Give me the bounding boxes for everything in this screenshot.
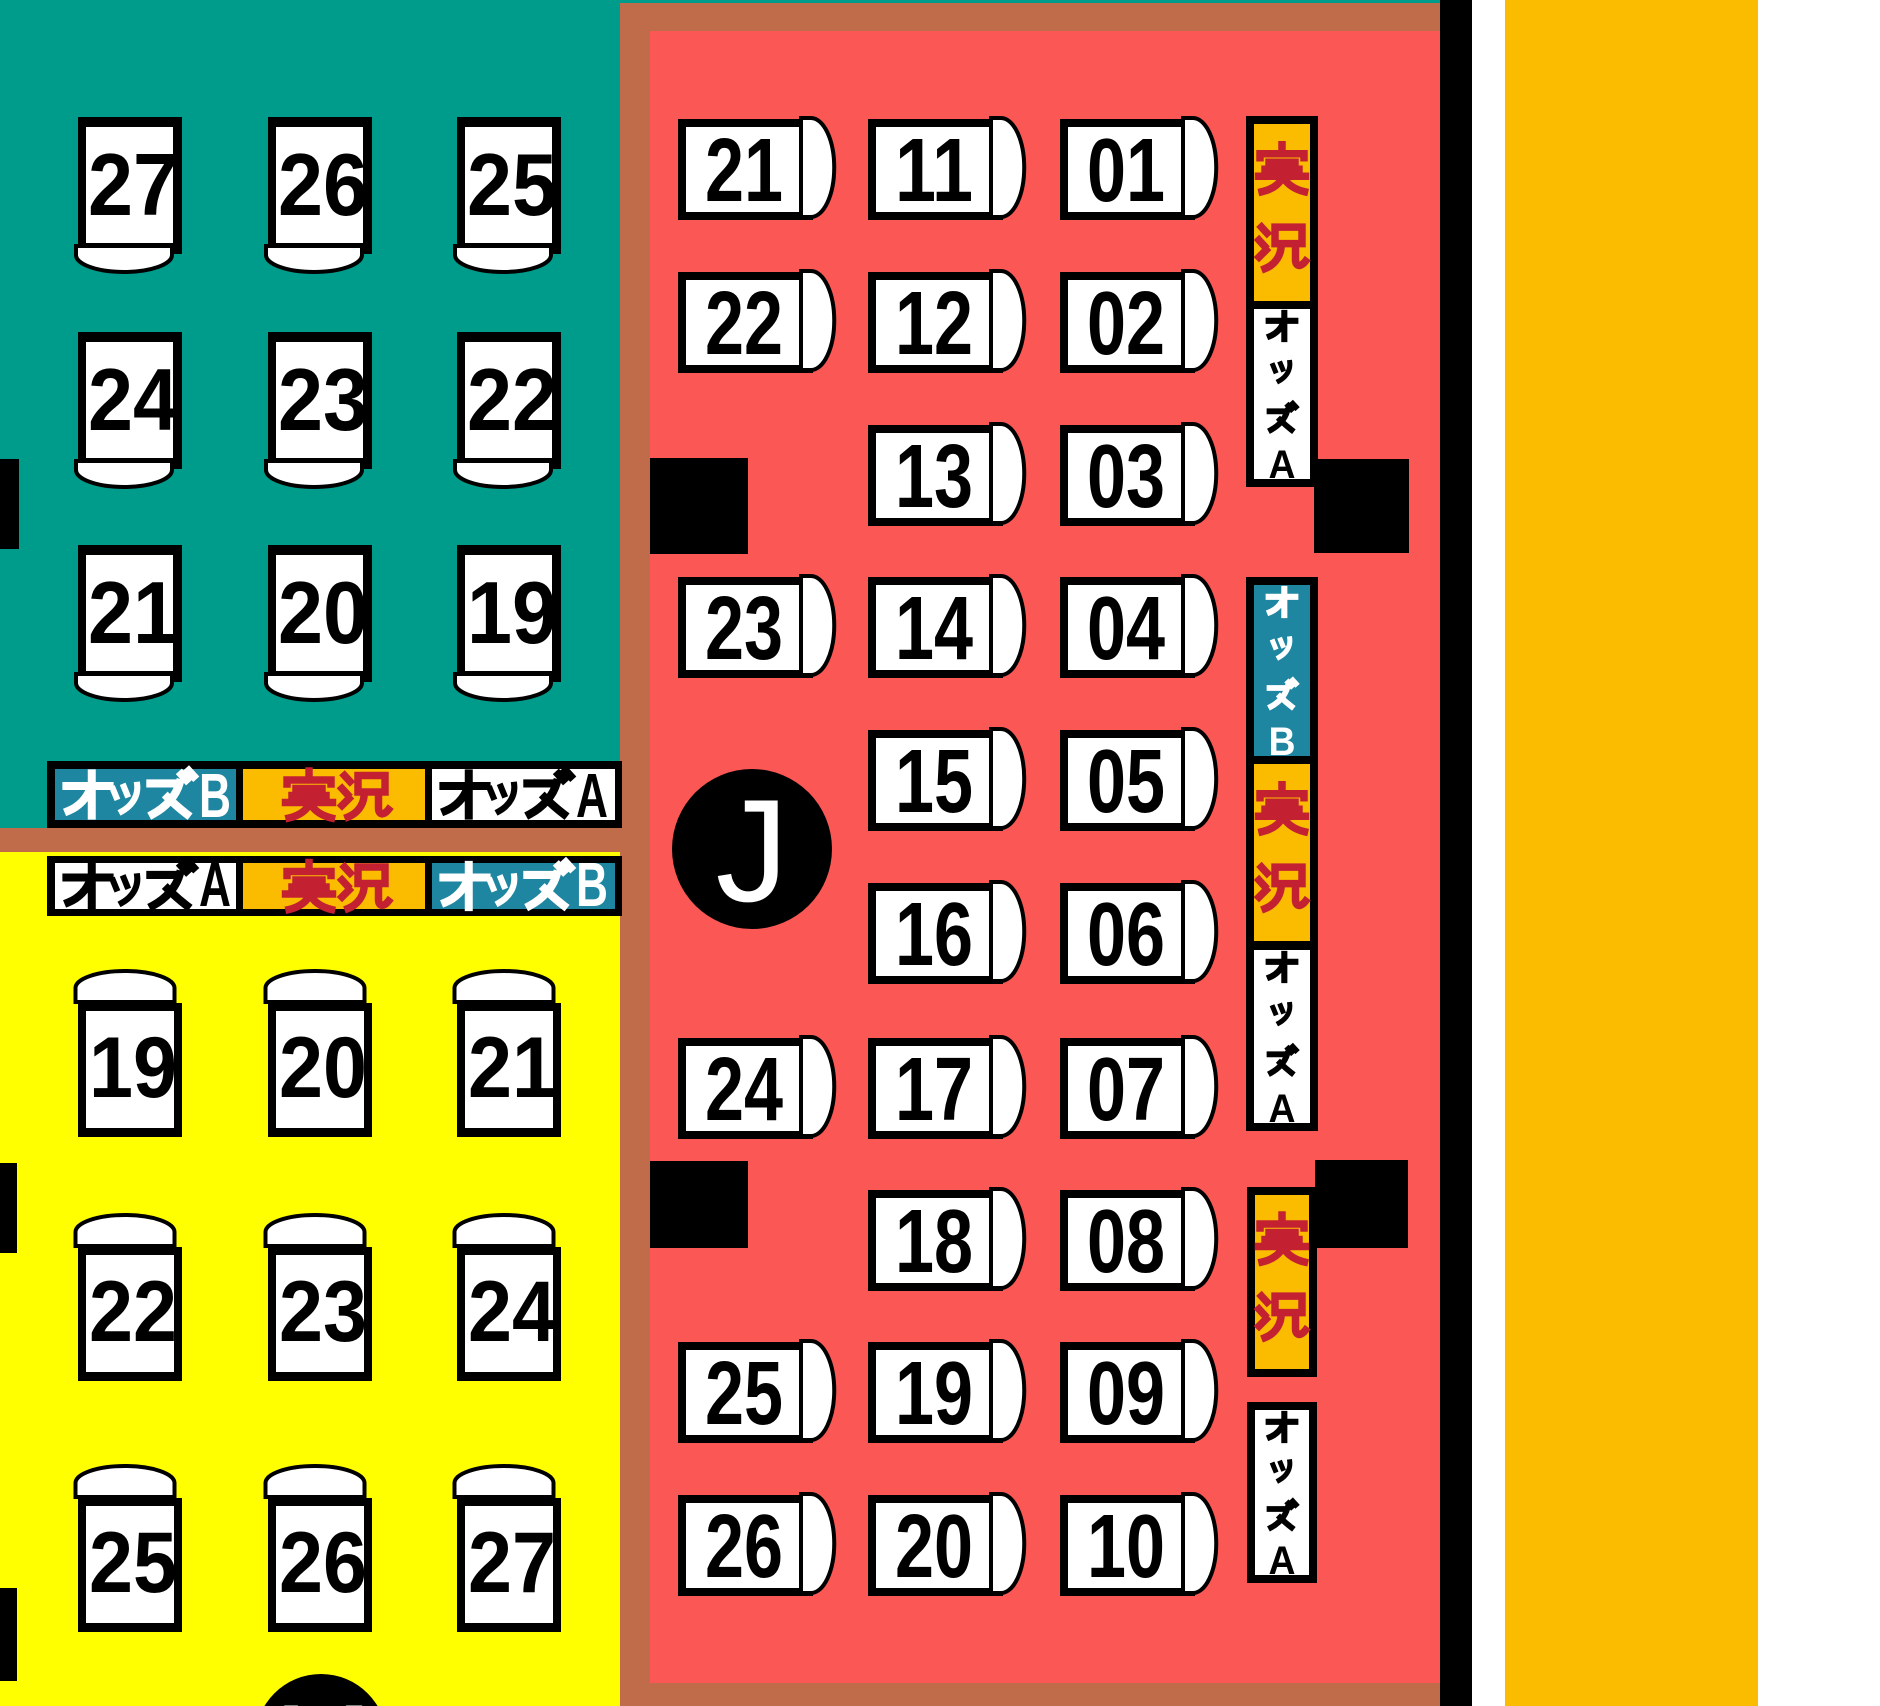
svg-text:14: 14 <box>895 579 973 679</box>
svg-text:27: 27 <box>88 135 178 234</box>
svg-text:20: 20 <box>278 563 368 662</box>
svg-text:A: A <box>1269 1539 1296 1583</box>
svg-text:B: B <box>199 762 231 831</box>
svg-text:26: 26 <box>279 1515 367 1611</box>
svg-text:18: 18 <box>895 1192 973 1292</box>
svg-text:21: 21 <box>88 563 178 662</box>
svg-text:03: 03 <box>1087 427 1165 527</box>
svg-text:A: A <box>1269 1087 1296 1131</box>
svg-text:B: B <box>576 851 608 920</box>
svg-text:22: 22 <box>467 350 557 449</box>
svg-text:24: 24 <box>468 1264 556 1360</box>
svg-text:05: 05 <box>1087 732 1165 832</box>
svg-text:22: 22 <box>89 1264 177 1360</box>
svg-text:19: 19 <box>895 1344 973 1444</box>
svg-text:A: A <box>199 851 231 920</box>
svg-text:01: 01 <box>1087 121 1165 221</box>
svg-text:23: 23 <box>278 350 368 449</box>
svg-text:25: 25 <box>467 135 557 234</box>
svg-text:A: A <box>1269 443 1296 487</box>
svg-text:26: 26 <box>278 135 368 234</box>
svg-text:19: 19 <box>467 563 557 662</box>
svg-text:23: 23 <box>279 1264 367 1360</box>
svg-text:06: 06 <box>1087 885 1165 985</box>
svg-text:08: 08 <box>1087 1192 1165 1292</box>
svg-text:22: 22 <box>705 274 783 374</box>
svg-text:20: 20 <box>279 1020 367 1116</box>
svg-text:25: 25 <box>705 1344 783 1444</box>
svg-text:09: 09 <box>1087 1344 1165 1444</box>
svg-text:21: 21 <box>705 121 783 221</box>
svg-text:20: 20 <box>895 1497 973 1597</box>
svg-text:J: J <box>716 769 789 932</box>
svg-text:26: 26 <box>705 1497 783 1597</box>
svg-text:11: 11 <box>895 121 973 221</box>
svg-text:19: 19 <box>89 1020 177 1116</box>
svg-text:15: 15 <box>895 732 973 832</box>
svg-text:B: B <box>1269 720 1296 764</box>
svg-text:13: 13 <box>895 427 973 527</box>
svg-text:16: 16 <box>895 885 973 985</box>
svg-text:25: 25 <box>89 1515 177 1611</box>
svg-text:27: 27 <box>468 1515 556 1611</box>
svg-text:07: 07 <box>1087 1040 1165 1140</box>
svg-text:02: 02 <box>1087 274 1165 374</box>
svg-text:12: 12 <box>895 274 973 374</box>
svg-text:K: K <box>272 1674 369 1706</box>
svg-text:23: 23 <box>705 579 783 679</box>
svg-text:17: 17 <box>895 1040 973 1140</box>
svg-text:10: 10 <box>1087 1497 1165 1597</box>
svg-text:24: 24 <box>705 1040 783 1140</box>
svg-text:A: A <box>576 762 608 831</box>
svg-text:04: 04 <box>1087 579 1165 679</box>
svg-text:24: 24 <box>88 350 178 449</box>
svg-text:21: 21 <box>468 1020 556 1116</box>
